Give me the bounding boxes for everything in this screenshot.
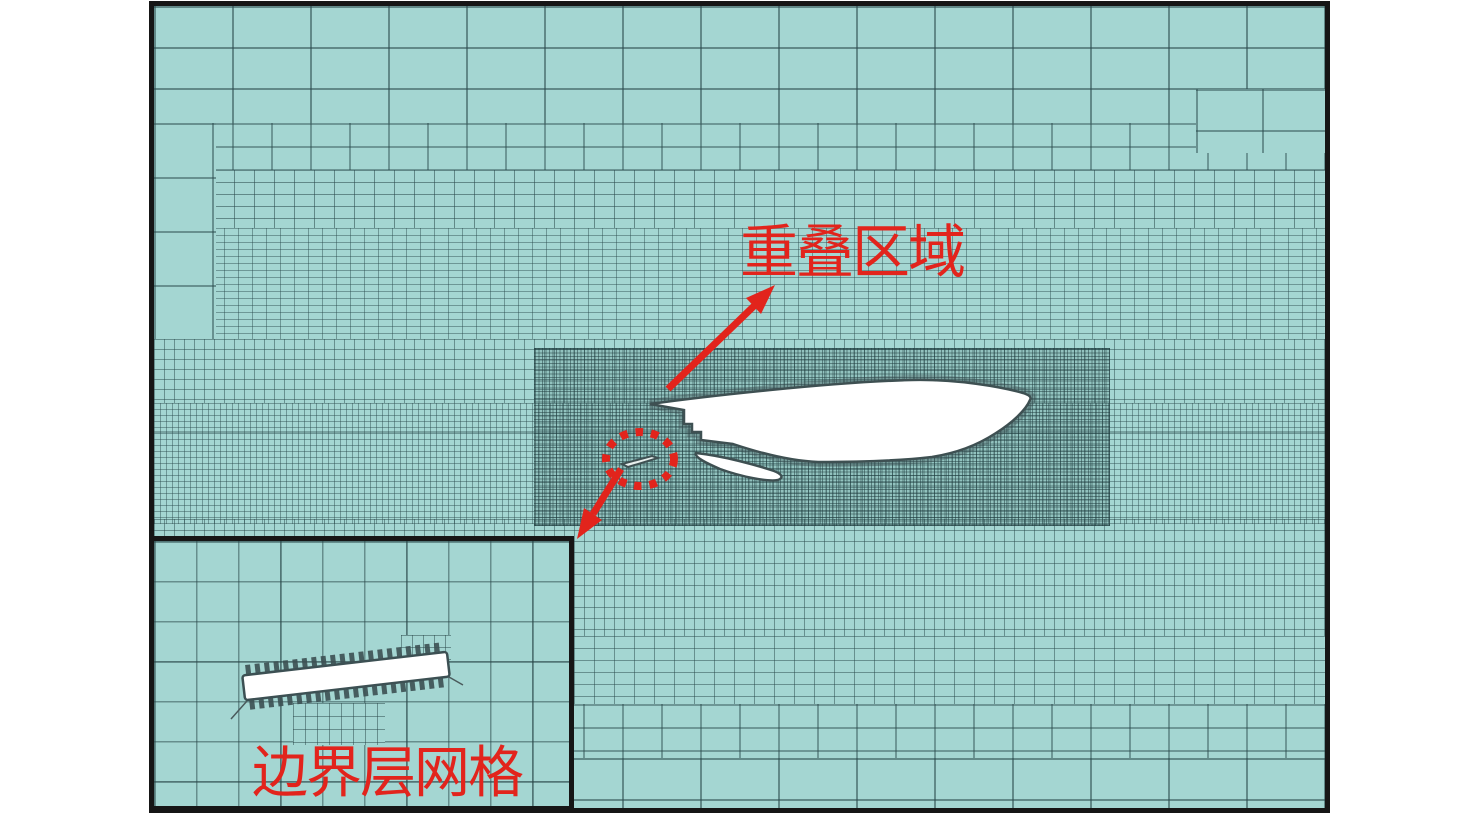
inset-mesh-refined-patch [401, 635, 451, 661]
boundary-layer-inset: 边界层网格 [149, 536, 574, 811]
mesh-patch-topright-notch [1196, 89, 1327, 153]
mesh-band-level1-top [154, 123, 1325, 170]
overlap-region-label: 重叠区域 [740, 224, 964, 282]
mesh-figure-frame: 重叠区域 边界层网格 [149, 1, 1330, 813]
mesh-band-coarse-top [154, 6, 1325, 123]
mesh-patch-left-coarse [154, 123, 216, 339]
boundary-layer-label: 边界层网格 [252, 746, 522, 802]
inset-mesh-refined-patch [293, 703, 385, 745]
overlap-grid-block [534, 348, 1110, 526]
cfd-mesh-figure-page: 重叠区域 边界层网格 [0, 0, 1476, 814]
